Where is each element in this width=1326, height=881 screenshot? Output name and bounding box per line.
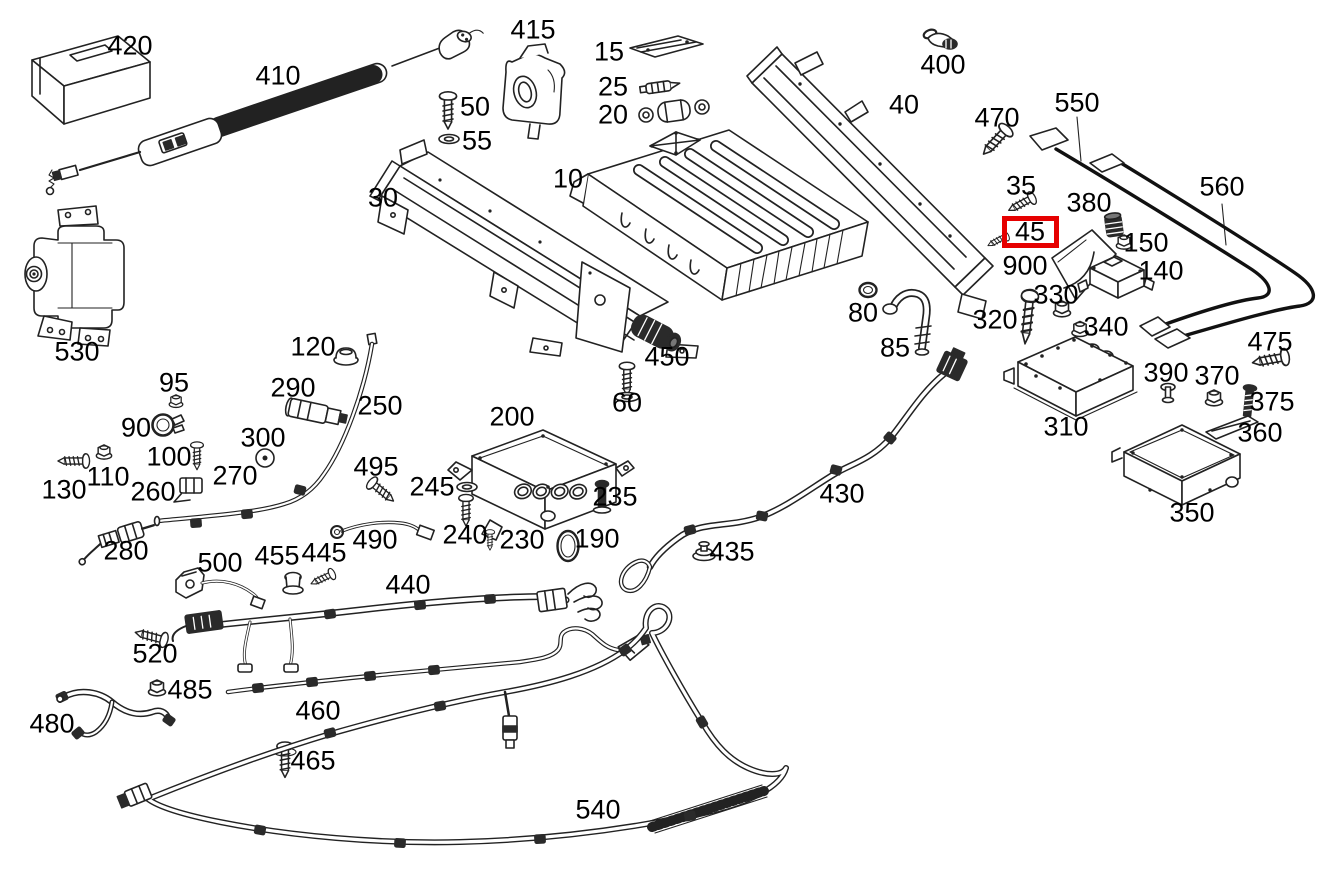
- part-label-440[interactable]: 440: [385, 572, 430, 599]
- part-label-20[interactable]: 20: [598, 102, 628, 129]
- part-label-60[interactable]: 60: [612, 390, 642, 417]
- part-label-330[interactable]: 330: [1033, 282, 1078, 309]
- label-layer: 4204104155055152520103040400470550560354…: [0, 0, 1326, 881]
- part-label-45[interactable]: 45: [1015, 219, 1045, 246]
- part-label-530[interactable]: 530: [54, 339, 99, 366]
- part-label-190[interactable]: 190: [574, 526, 619, 553]
- part-label-95[interactable]: 95: [159, 370, 189, 397]
- part-label-460[interactable]: 460: [295, 698, 340, 725]
- part-label-475[interactable]: 475: [1247, 329, 1292, 356]
- part-label-455[interactable]: 455: [254, 543, 299, 570]
- part-label-200[interactable]: 200: [489, 404, 534, 431]
- part-label-420[interactable]: 420: [107, 33, 152, 60]
- part-label-240[interactable]: 240: [442, 522, 487, 549]
- part-label-375[interactable]: 375: [1249, 389, 1294, 416]
- part-label-100[interactable]: 100: [146, 444, 191, 471]
- part-label-310[interactable]: 310: [1043, 414, 1088, 441]
- part-label-40[interactable]: 40: [889, 92, 919, 119]
- part-label-35[interactable]: 35: [1006, 173, 1036, 200]
- part-label-495[interactable]: 495: [353, 454, 398, 481]
- part-label-15[interactable]: 15: [594, 39, 624, 66]
- part-label-465[interactable]: 465: [290, 748, 335, 775]
- part-label-500[interactable]: 500: [197, 550, 242, 577]
- part-label-110[interactable]: 110: [86, 464, 129, 491]
- part-label-540[interactable]: 540: [575, 797, 620, 824]
- part-label-410[interactable]: 410: [255, 63, 300, 90]
- parts-diagram-canvas: 4204104155055152520103040400470550560354…: [0, 0, 1326, 881]
- part-label-340[interactable]: 340: [1083, 314, 1128, 341]
- part-label-415[interactable]: 415: [510, 17, 555, 44]
- part-label-230[interactable]: 230: [499, 527, 544, 554]
- part-label-150[interactable]: 150: [1123, 230, 1168, 257]
- part-label-550[interactable]: 550: [1054, 90, 1099, 117]
- part-label-300[interactable]: 300: [240, 425, 285, 452]
- part-label-130[interactable]: 130: [41, 477, 86, 504]
- part-label-370[interactable]: 370: [1194, 363, 1239, 390]
- part-label-10[interactable]: 10: [553, 166, 583, 193]
- part-label-350[interactable]: 350: [1169, 500, 1214, 527]
- part-label-140[interactable]: 140: [1138, 258, 1183, 285]
- part-label-25[interactable]: 25: [598, 74, 628, 101]
- part-label-430[interactable]: 430: [819, 481, 864, 508]
- part-label-280[interactable]: 280: [103, 538, 148, 565]
- part-label-360[interactable]: 360: [1237, 420, 1282, 447]
- part-label-400[interactable]: 400: [920, 52, 965, 79]
- part-label-235[interactable]: 235: [592, 484, 637, 511]
- part-label-55[interactable]: 55: [462, 128, 492, 155]
- part-label-85[interactable]: 85: [880, 335, 910, 362]
- part-label-520[interactable]: 520: [132, 641, 177, 668]
- part-label-445[interactable]: 445: [301, 540, 346, 567]
- part-label-490[interactable]: 490: [352, 527, 397, 554]
- part-label-245[interactable]: 245: [409, 474, 454, 501]
- part-label-120[interactable]: 120: [290, 334, 335, 361]
- part-label-260[interactable]: 260: [130, 479, 175, 506]
- part-label-250[interactable]: 250: [357, 393, 402, 420]
- part-label-560[interactable]: 560: [1199, 174, 1244, 201]
- part-label-50[interactable]: 50: [460, 94, 490, 121]
- part-label-485[interactable]: 485: [167, 677, 212, 704]
- part-label-480[interactable]: 480: [29, 711, 74, 738]
- part-label-900[interactable]: 900: [1002, 253, 1047, 280]
- part-label-290[interactable]: 290: [270, 375, 315, 402]
- part-label-320[interactable]: 320: [972, 307, 1017, 334]
- part-label-380[interactable]: 380: [1066, 190, 1111, 217]
- part-label-80[interactable]: 80: [848, 300, 878, 327]
- part-label-435[interactable]: 435: [709, 539, 754, 566]
- part-label-90[interactable]: 90: [121, 415, 151, 442]
- part-label-450[interactable]: 450: [644, 344, 689, 371]
- part-label-470[interactable]: 470: [974, 105, 1019, 132]
- part-label-390[interactable]: 390: [1143, 360, 1188, 387]
- part-label-270[interactable]: 270: [212, 463, 257, 490]
- part-label-30[interactable]: 30: [368, 185, 398, 212]
